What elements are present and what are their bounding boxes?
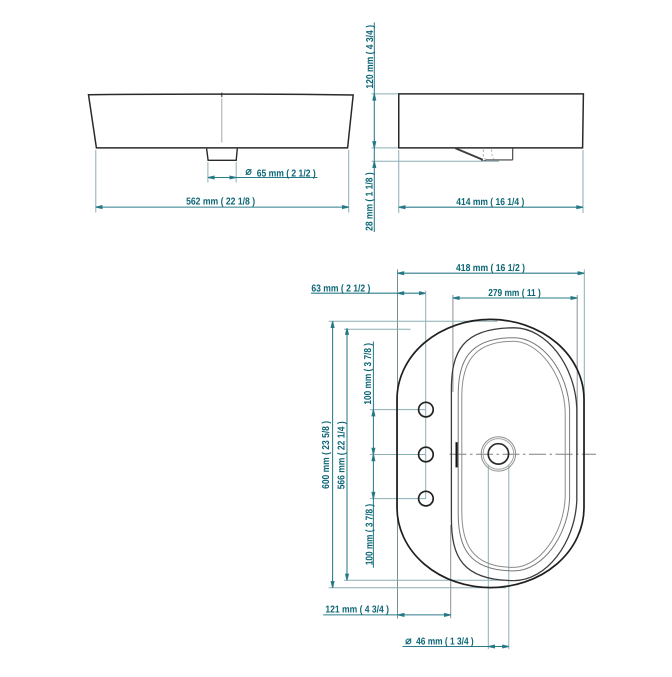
svg-text:600 mm ( 23 5/8 ): 600 mm ( 23 5/8 ) xyxy=(321,421,332,489)
svg-text:418 mm ( 16 1/2 ): 418 mm ( 16 1/2 ) xyxy=(456,263,525,274)
svg-text:562 mm ( 22 1/8 ): 562 mm ( 22 1/8 ) xyxy=(186,197,255,208)
svg-text:46 mm ( 1 3/4 ): 46 mm ( 1 3/4 ) xyxy=(416,637,474,648)
svg-text:121 mm ( 4 3/4 ): 121 mm ( 4 3/4 ) xyxy=(325,605,389,616)
svg-text:566 mm ( 22 1/4 ): 566 mm ( 22 1/4 ) xyxy=(337,421,348,489)
svg-text:100 mm ( 3 7/8 ): 100 mm ( 3 7/8 ) xyxy=(363,343,374,405)
svg-text:100 mm ( 3 7/8 ): 100 mm ( 3 7/8 ) xyxy=(364,504,375,565)
svg-text:28 mm ( 1 1/8 ): 28 mm ( 1 1/8 ) xyxy=(365,172,376,231)
svg-text:63 mm ( 2 1/2 ): 63 mm ( 2 1/2 ) xyxy=(311,283,370,294)
svg-text:65 mm ( 2 1/2 ): 65 mm ( 2 1/2 ) xyxy=(257,168,316,179)
svg-text:279 mm ( 11 ): 279 mm ( 11 ) xyxy=(488,288,541,299)
svg-text:120 mm ( 4 3/4 ): 120 mm ( 4 3/4 ) xyxy=(365,25,376,89)
svg-text:414 mm ( 16 1/4 ): 414 mm ( 16 1/4 ) xyxy=(456,197,524,208)
